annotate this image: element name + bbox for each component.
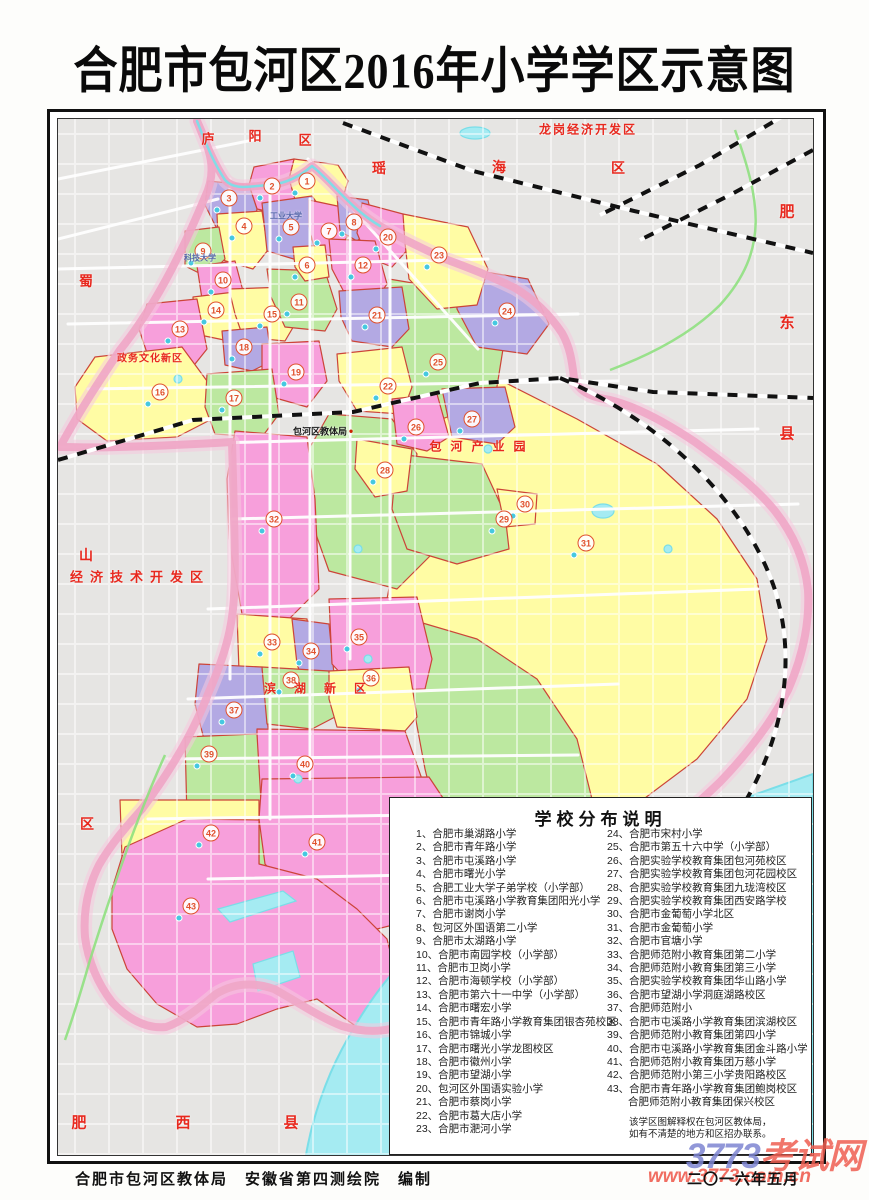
- legend-item: 6、合肥市屯溪路小学教育集团阳光小学: [416, 895, 617, 908]
- area-label: 阳: [248, 126, 261, 145]
- credits: 合肥市包河区教体局 安徽省第四测绘院 编制: [75, 1168, 432, 1189]
- legend-item: 12、合肥市海顿学校（小学部）: [416, 975, 617, 988]
- district-marker-27: 27: [464, 411, 481, 428]
- area-label: 山: [79, 545, 93, 565]
- legend-item: 16、合肥市锦城小学: [416, 1029, 617, 1042]
- district-marker-7: 7: [321, 223, 338, 240]
- legend-item: 24、合肥市宋村小学: [607, 828, 808, 841]
- school-location-dot: [489, 528, 496, 535]
- legend-item: 7、合肥市谢岗小学: [416, 908, 617, 921]
- school-location-dot: [370, 479, 377, 486]
- area-label: 经济技术开发区: [70, 567, 210, 586]
- school-location-dot: [257, 323, 264, 330]
- district-marker-2: 2: [264, 178, 281, 195]
- legend-item: 36、合肥市望湖小学洞庭湖路校区: [607, 989, 808, 1002]
- district-marker-25: 25: [430, 354, 447, 371]
- school-location-dot: [229, 356, 236, 363]
- school-location-dot: [423, 371, 430, 378]
- school-location-dot: [314, 240, 321, 247]
- school-location-dot: [344, 646, 351, 653]
- school-location-dot: [257, 195, 264, 202]
- district-marker-8: 8: [346, 214, 363, 231]
- legend-item: 20、包河区外国语实验小学: [416, 1083, 617, 1096]
- school-location-dot: [292, 190, 299, 197]
- district-marker-22: 22: [380, 378, 397, 395]
- school-location-dot: [214, 207, 221, 214]
- legend-item: 30、合肥市金葡萄小学北区: [607, 908, 808, 921]
- legend-column-1: 1、合肥市巢湖路小学2、合肥市青年路小学3、合肥市屯溪路小学4、合肥市曙光小学5…: [416, 828, 617, 1136]
- legend-item: 41、合肥师范附小教育集团万慈小学: [607, 1056, 808, 1069]
- legend-item: 27、合肥实验学校教育集团包河花园校区: [607, 868, 808, 881]
- area-label: 肥: [71, 1112, 86, 1133]
- district-marker-26: 26: [408, 419, 425, 436]
- legend-column-2: 24、合肥市宋村小学25、合肥市第五十六中学（小学部）26、合肥实验学校教育集团…: [607, 828, 808, 1141]
- school-location-dot: [196, 842, 203, 849]
- legend-item: 14、合肥市曙宏小学: [416, 1002, 617, 1015]
- district-marker-33: 33: [264, 634, 281, 651]
- district-marker-28: 28: [377, 462, 394, 479]
- legend-item: 37、合肥师范附小: [607, 1002, 808, 1015]
- school-location-dot: [373, 246, 380, 253]
- district-marker-15: 15: [264, 306, 281, 323]
- district-marker-19: 19: [288, 364, 305, 381]
- legend-item: 25、合肥市第五十六中学（小学部）: [607, 841, 808, 854]
- area-label: 龙岗经济开发区: [539, 121, 637, 138]
- legend-item: 3、合肥市屯溪路小学: [416, 855, 617, 868]
- legend-item: 18、合肥市徽州小学: [416, 1056, 617, 1069]
- poi-label: ●: [349, 427, 354, 436]
- school-location-dot: [219, 407, 226, 414]
- legend-item: 26、合肥实验学校教育集团包河苑校区: [607, 855, 808, 868]
- legend-item: 28、合肥实验学校教育集团九珑湾校区: [607, 882, 808, 895]
- legend-item: 17、合肥市曙光小学龙图校区: [416, 1043, 617, 1056]
- area-label: 县: [283, 1112, 298, 1133]
- area-label: 肥: [779, 201, 794, 222]
- school-location-dot: [165, 338, 172, 345]
- school-location-dot: [424, 264, 431, 271]
- school-location-dot: [401, 436, 408, 443]
- district-marker-11: 11: [291, 294, 308, 311]
- area-label: 西: [175, 1112, 190, 1133]
- school-location-dot: [176, 915, 183, 922]
- legend-item: 1、合肥市巢湖路小学: [416, 828, 617, 841]
- district-marker-41: 41: [309, 834, 326, 851]
- district-marker-18: 18: [236, 339, 253, 356]
- school-location-dot: [208, 289, 215, 296]
- page-title: 合肥市包河区2016年小学学区示意图: [0, 30, 869, 102]
- area-label: 蜀: [79, 271, 93, 291]
- district-marker-14: 14: [208, 302, 225, 319]
- school-location-dot: [302, 851, 309, 858]
- school-location-dot: [284, 311, 291, 318]
- district-marker-4: 4: [236, 218, 253, 235]
- school-location-dot: [276, 236, 283, 243]
- district-marker-12: 12: [355, 257, 372, 274]
- school-location-dot: [348, 274, 355, 281]
- area-label: 县: [779, 423, 794, 444]
- district-marker-43: 43: [183, 898, 200, 915]
- district-marker-42: 42: [203, 825, 220, 842]
- district-marker-3: 3: [221, 190, 238, 207]
- area-label: 区: [298, 130, 311, 149]
- poi-label: 科技大学: [184, 253, 216, 264]
- legend-item: 10、合肥市南园学校（小学部）: [416, 949, 617, 962]
- school-location-dot: [292, 274, 299, 281]
- district-marker-40: 40: [297, 756, 314, 773]
- legend-item: 22、合肥市葛大店小学: [416, 1110, 617, 1123]
- area-label: 东: [779, 312, 794, 333]
- area-label: 滨湖新区: [264, 680, 384, 697]
- area-label: 区: [611, 158, 625, 178]
- school-location-dot: [229, 235, 236, 242]
- district-marker-20: 20: [380, 229, 397, 246]
- district-marker-35: 35: [351, 629, 368, 646]
- legend-item: 11、合肥市卫岗小学: [416, 962, 617, 975]
- legend-item: 2、合肥市青年路小学: [416, 841, 617, 854]
- area-label: 政务文化新区: [117, 350, 183, 365]
- legend-item: 35、合肥实验学校教育集团华山路小学: [607, 975, 808, 988]
- page: { "title": "合肥市包河区2016年小学学区示意图", "legend…: [0, 0, 869, 1200]
- poi-label: 工业大学: [270, 211, 302, 222]
- district-marker-6: 6: [299, 257, 316, 274]
- school-location-dot: [257, 651, 264, 658]
- legend-item: 33、合肥师范附小教育集团第二小学: [607, 949, 808, 962]
- legend-item: 42、合肥师范附小第三小学贵阳路校区: [607, 1069, 808, 1082]
- legend-item: 9、合肥市太湖路小学: [416, 935, 617, 948]
- school-location-dot: [194, 763, 201, 770]
- poi-label: 包河区教体局: [293, 425, 347, 438]
- district-marker-23: 23: [431, 247, 448, 264]
- area-label: 海: [492, 157, 506, 177]
- district-marker-16: 16: [152, 384, 169, 401]
- school-location-dot: [145, 401, 152, 408]
- legend-title: 学校分布说明: [390, 805, 811, 830]
- district-marker-29: 29: [496, 511, 513, 528]
- school-location-dot: [201, 319, 208, 326]
- school-location-dot: [571, 552, 578, 559]
- legend-item: 8、包河区外国语第二小学: [416, 922, 617, 935]
- area-label: 包河产业园: [429, 438, 534, 455]
- legend-item: 合肥师范附小教育集团保兴校区: [607, 1096, 808, 1109]
- school-location-dot: [259, 528, 266, 535]
- school-location-dot: [281, 381, 288, 388]
- school-location-dot: [290, 773, 297, 780]
- district-marker-34: 34: [303, 643, 320, 660]
- publish-date: 二〇一六年五月: [687, 1168, 799, 1189]
- legend-item: 23、合肥市淝河小学: [416, 1123, 617, 1136]
- district-marker-21: 21: [369, 307, 386, 324]
- school-location-dot: [296, 660, 303, 667]
- legend-item: 15、合肥市青年路小学教育集团银杏苑校区: [416, 1016, 617, 1029]
- legend-item: 29、合肥实验学校教育集团西安路学校: [607, 895, 808, 908]
- district-marker-17: 17: [226, 390, 243, 407]
- district-marker-24: 24: [499, 303, 516, 320]
- district-marker-13: 13: [172, 321, 189, 338]
- legend-item: 4、合肥市曙光小学: [416, 868, 617, 881]
- legend-item: 34、合肥师范附小教育集团第三小学: [607, 962, 808, 975]
- district-marker-37: 37: [226, 702, 243, 719]
- district-marker-39: 39: [201, 746, 218, 763]
- school-location-dot: [492, 320, 499, 327]
- legend-item: 32、合肥市官塘小学: [607, 935, 808, 948]
- legend-item: 31、合肥市金葡萄小学: [607, 922, 808, 935]
- school-location-dot: [457, 428, 464, 435]
- legend-box: 学校分布说明 1、合肥市巢湖路小学2、合肥市青年路小学3、合肥市屯溪路小学4、合…: [389, 797, 812, 1155]
- district-marker-31: 31: [578, 535, 595, 552]
- legend-item: 19、合肥市望湖小学: [416, 1069, 617, 1082]
- legend-item: 13、合肥市第六十一中学（小学部）: [416, 989, 617, 1002]
- legend-item: 40、合肥市屯溪路小学教育集团金斗路小学: [607, 1043, 808, 1056]
- legend-item: 21、合肥市蔡岗小学: [416, 1096, 617, 1109]
- legend-item: 43、合肥市青年路小学教育集团鲍岗校区: [607, 1083, 808, 1096]
- district-marker-30: 30: [517, 496, 534, 513]
- legend-item: 38、合肥市屯溪路小学教育集团滨湖校区: [607, 1016, 808, 1029]
- school-location-dot: [362, 324, 369, 331]
- area-label: 区: [80, 814, 94, 834]
- area-label: 瑶: [372, 158, 386, 178]
- district-marker-32: 32: [266, 511, 283, 528]
- area-label: 庐: [201, 129, 214, 148]
- district-marker-1: 1: [299, 173, 316, 190]
- legend-item: 5、合肥工业大学子弟学校（小学部）: [416, 882, 617, 895]
- district-marker-10: 10: [215, 272, 232, 289]
- school-location-dot: [219, 719, 226, 726]
- legend-item: 39、合肥师范附小教育集团第四小学: [607, 1029, 808, 1042]
- school-location-dot: [373, 395, 380, 402]
- school-location-dot: [339, 231, 346, 238]
